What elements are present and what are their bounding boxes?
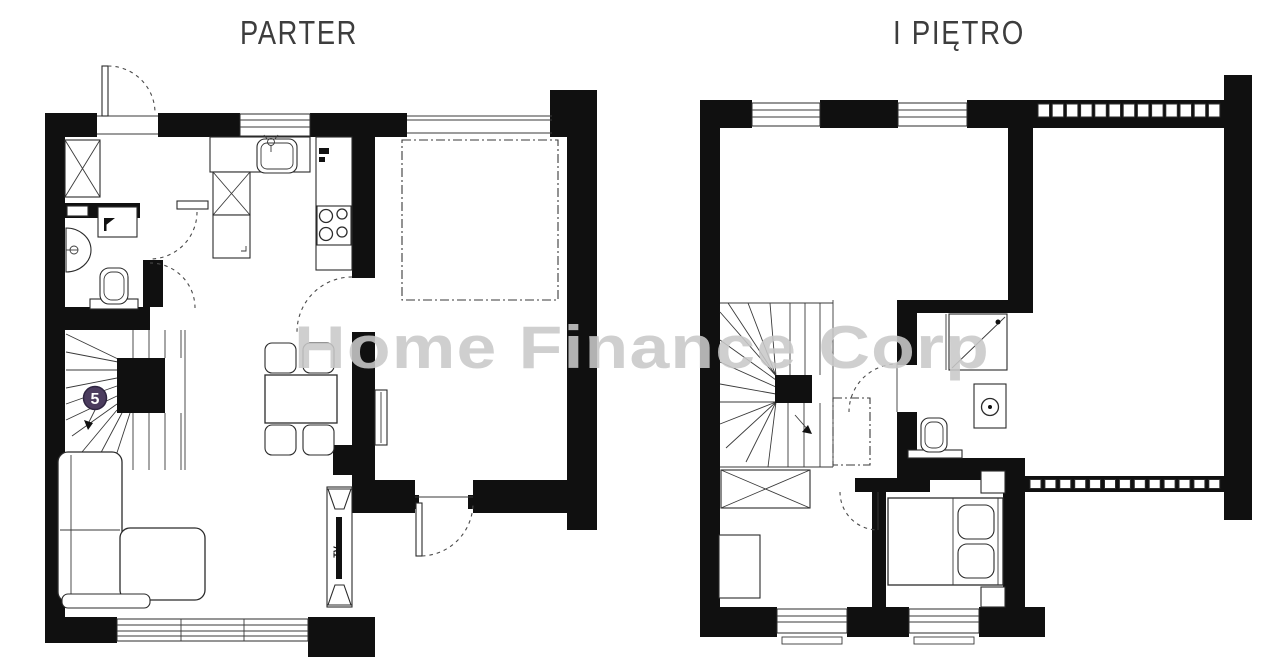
sofa-armrest — [62, 594, 150, 608]
stair-void-dashed — [833, 398, 870, 465]
sofa-chaise — [120, 528, 205, 600]
gf-bathroom — [66, 206, 138, 309]
garage-door-leaf — [416, 503, 422, 556]
nightstand — [981, 587, 1005, 607]
garage-outline-dashed — [402, 140, 558, 300]
floorplan-canvas: PARTER I PIĘTRO — [0, 0, 1280, 671]
svg-text:5: 5 — [91, 391, 100, 408]
fridge-icon — [213, 172, 250, 258]
sink-icon — [257, 135, 297, 173]
tv-label: TV — [332, 546, 342, 558]
terrace-railing-top — [1035, 100, 1225, 128]
hall-shelf — [177, 201, 208, 209]
gf-entrance-door — [97, 66, 158, 134]
bathroom-door-arc — [150, 212, 197, 259]
terrace-railing-bottom — [1025, 476, 1232, 492]
pillow — [958, 544, 994, 578]
ff-wardrobe — [721, 470, 810, 508]
bedroom2-window2 — [898, 103, 967, 126]
door-leaf — [102, 66, 108, 116]
stove-icon — [317, 206, 351, 245]
bottom-window2 — [909, 609, 979, 633]
kitchen-counter-right — [316, 137, 352, 270]
bedroom2-window — [752, 103, 820, 126]
nightstand — [981, 471, 1005, 493]
ff-room-bottom-left — [719, 535, 760, 598]
washbasin-icon — [66, 228, 91, 272]
door-swing-arc — [108, 66, 155, 113]
bottom-window1 — [777, 609, 847, 633]
pillow — [958, 505, 994, 539]
kitchen-window — [240, 114, 310, 136]
garage-door-arc — [422, 503, 473, 556]
dining-table — [265, 375, 337, 423]
stair-direction-arrow — [802, 425, 812, 434]
bathroom-shelf — [67, 206, 88, 216]
gf-stairs: 5 — [66, 330, 185, 470]
watermark-text: Home Finance Corp — [294, 314, 990, 381]
toilet-icon — [90, 268, 138, 309]
shower-icon — [98, 207, 137, 237]
stair-newel-block — [117, 358, 165, 413]
floorplan-drawing: PARTER I PIĘTRO — [0, 0, 1280, 671]
tv-unit: TV — [327, 487, 352, 607]
desk — [719, 535, 760, 598]
chair-icon — [265, 343, 296, 373]
chair-icon — [303, 425, 334, 455]
first-floor-title: I PIĘTRO — [893, 14, 1025, 51]
bed-icon — [888, 498, 1003, 585]
sofa-vertical — [58, 452, 122, 602]
gf-sofa — [58, 452, 205, 608]
living-room-window — [117, 619, 308, 641]
stairs-badge: 5 — [84, 387, 107, 410]
chair-icon — [265, 425, 296, 455]
washing-machine-icon — [974, 384, 1006, 428]
gf-kitchen — [210, 135, 352, 332]
ground-floor-title: PARTER — [240, 14, 358, 51]
